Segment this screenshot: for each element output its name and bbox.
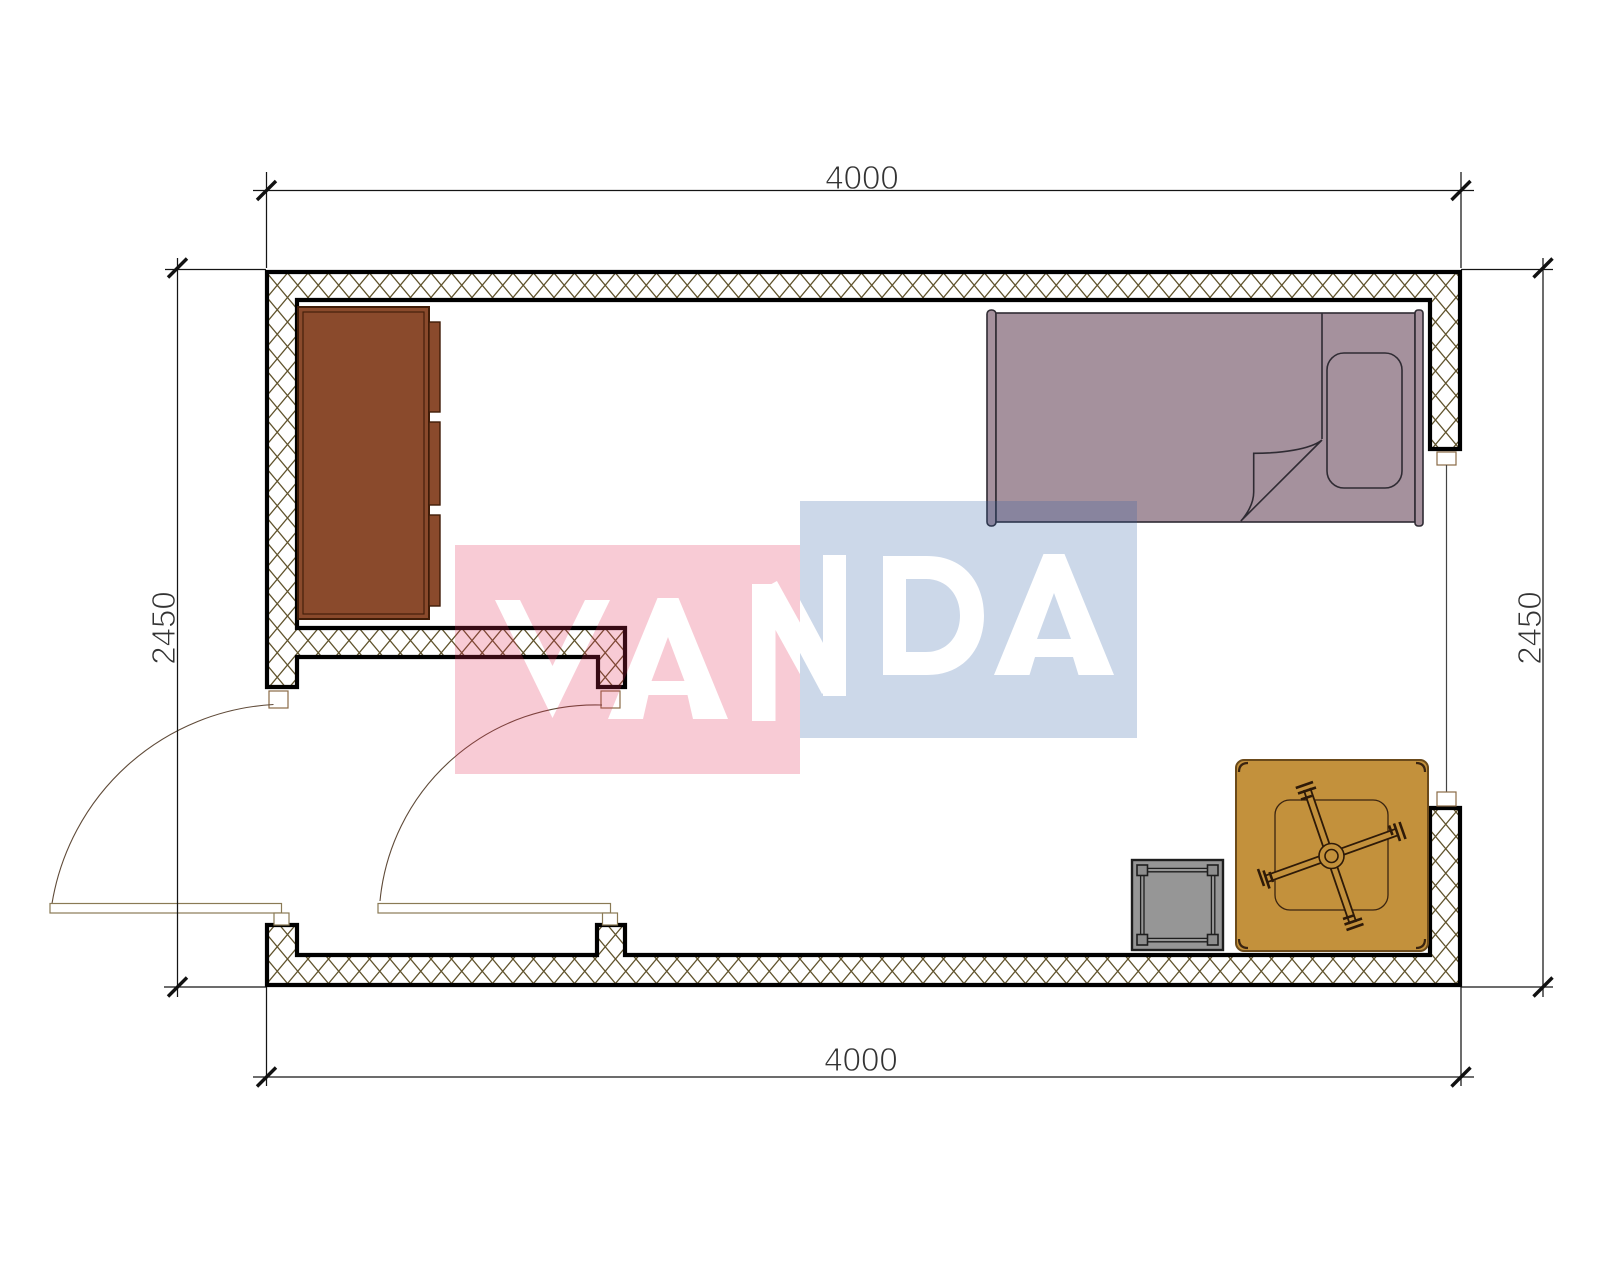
svg-text:4000: 4000	[825, 159, 898, 196]
svg-text:4000: 4000	[824, 1041, 897, 1078]
svg-text:2450: 2450	[1511, 591, 1548, 664]
svg-text:2450: 2450	[145, 591, 182, 664]
